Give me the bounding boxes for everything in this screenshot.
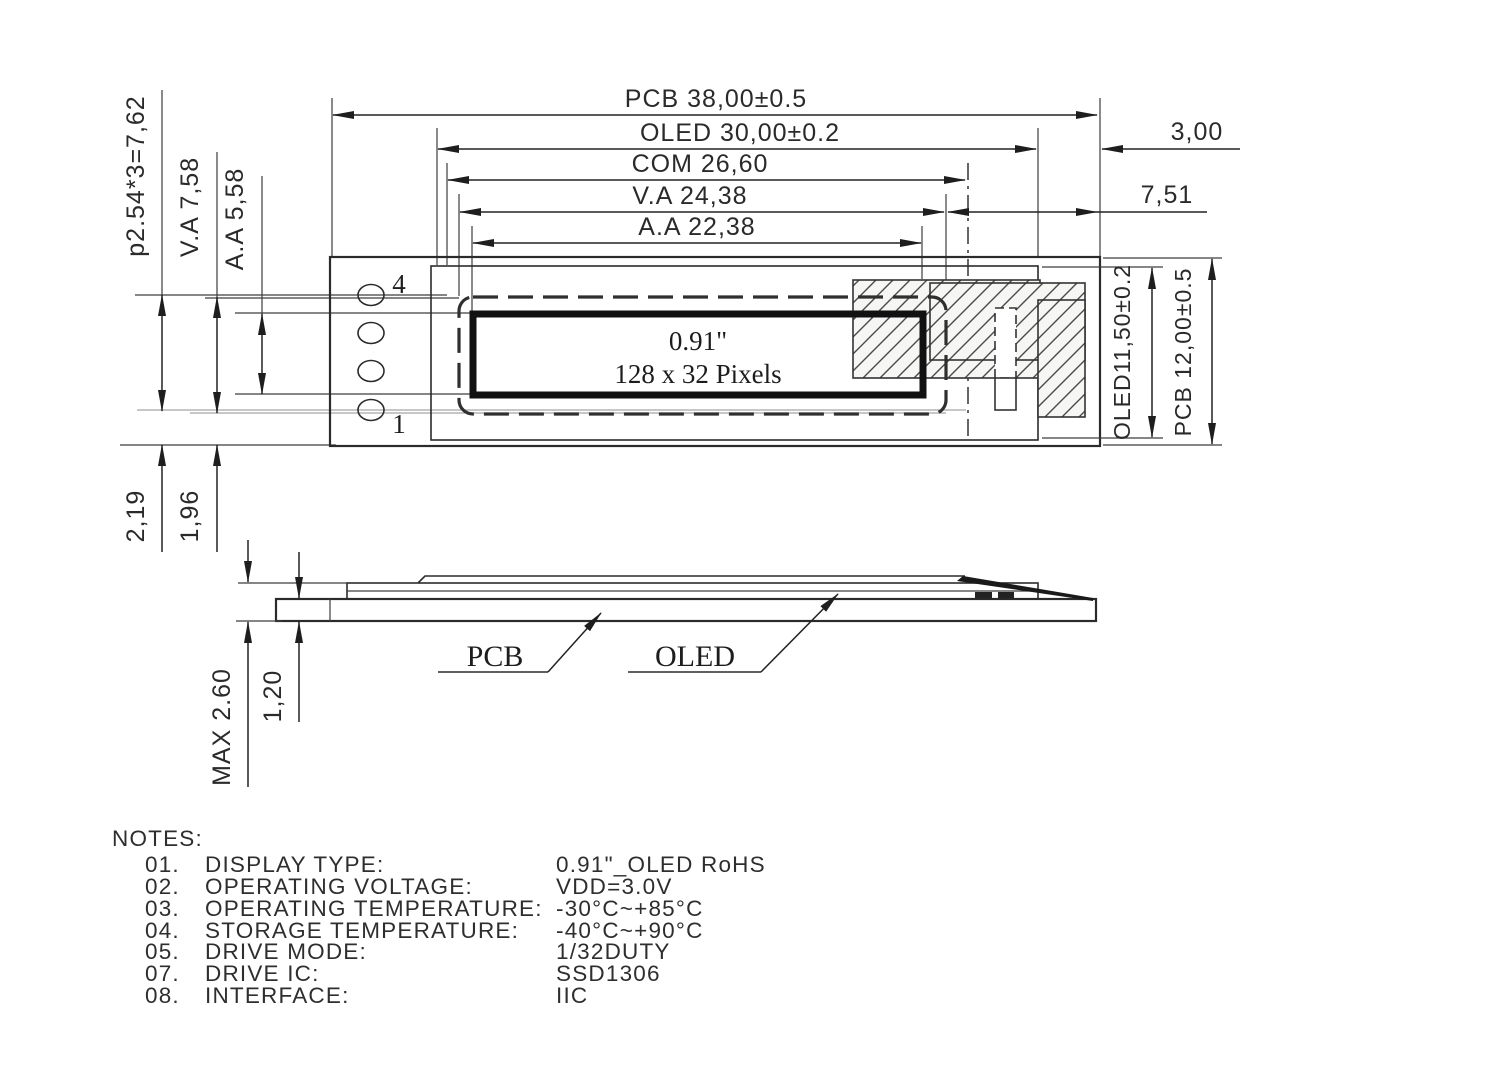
ic-hatch-zone-right [1038,300,1085,417]
notes-block: NOTES: 01. DISPLAY TYPE: 0.91"_OLED RoHS… [112,826,766,1008]
ic-slot-lower [995,378,1016,410]
display-pixels-label: 128 x 32 Pixels [614,359,781,389]
side-view: PCB OLED [276,576,1096,673]
dim-pcb-height-label: PCB 12,00±0.5 [1170,268,1196,437]
pin-4-label: 4 [392,269,406,299]
dim-pcb-width-label: PCB 38,00±0.5 [625,85,807,113]
dim-pcb-thickness-label: 1,20 [259,670,287,723]
notes-heading: NOTES: [112,826,203,851]
side-pcb-label: PCB [467,640,524,673]
dim-oled-width-label: OLED 30,00±0.2 [640,119,840,147]
side-pcb-body [276,599,1096,621]
pin-1-label: 1 [392,409,406,439]
dim-pin-offset-b-label: 1,96 [176,490,204,543]
note-label: INTERFACE: [205,983,350,1008]
dim-pin-pitch-label: p2.54*3=7,62 [122,95,150,256]
note-value: IIC [556,983,588,1008]
dim-com-width-label: COM 26,60 [632,150,769,178]
oled-module-drawing-page: PCB 38,00±0.5 OLED 30,00±0.2 COM 26,60 V… [0,0,1500,1066]
ic-slot [995,308,1016,378]
dim-aa-height-label: A.A 5,58 [221,168,249,271]
dim-edge-gap-label: 3,00 [1171,118,1224,146]
side-oled-label: OLED [655,640,735,673]
note-row-08: 08. INTERFACE: IIC [145,983,588,1008]
display-size-label: 0.91" [669,326,727,356]
side-dimension-group: MAX 2.60 1,20 [208,540,418,787]
dim-oled-height-label: OLED11,50±0.2 [1109,264,1135,440]
side-flex-pad-2 [998,592,1014,598]
dim-right-gap-label: 7,51 [1141,181,1194,209]
dim-va-height-label: V.A 7,58 [176,157,204,257]
dim-max-thickness-label: MAX 2.60 [208,668,236,786]
pin-hole-2 [358,361,384,382]
left-dimension-group: p2.54*3=7,62 V.A 7,58 A.A 5,58 2,19 1,96 [120,90,966,552]
top-dimension-group: PCB 38,00±0.5 OLED 30,00±0.2 COM 26,60 V… [332,85,1240,438]
dim-aa-width-label: A.A 22,38 [638,213,755,241]
side-oled-top-layer [418,576,965,583]
side-flex-pad-1 [975,592,992,598]
dim-va-width-label: V.A 24,38 [632,182,747,210]
dim-pin-offset-a-label: 2,19 [122,490,150,543]
front-view: 4 1 0.91" 128 x 32 Pixels [330,257,1100,446]
technical-drawing: PCB 38,00±0.5 OLED 30,00±0.2 COM 26,60 V… [0,0,1500,1066]
pin-hole-3 [358,323,384,344]
note-number: 08. [145,983,180,1008]
